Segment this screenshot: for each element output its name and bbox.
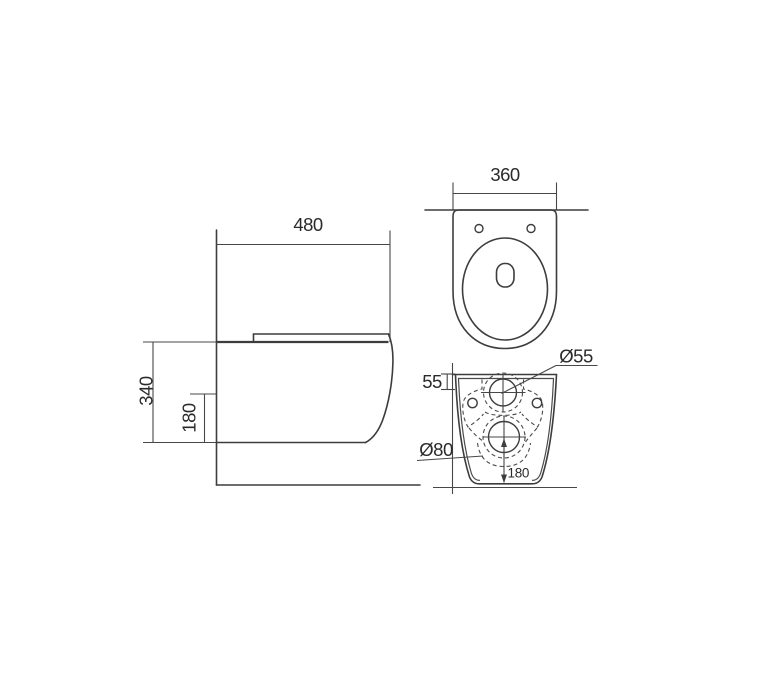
rear-dim-180-arrow-down [501,475,507,484]
rear-view: 55 Ø55 Ø80 180 [417,346,598,495]
side-dim-180-label: 180 [179,403,200,433]
top-view: 360 [425,164,588,349]
side-view: 480 340 180 [136,214,421,485]
rear-dim-55-label: 55 [422,371,442,392]
rear-hidden-connector-right [526,428,538,442]
top-mounting-hole-right [527,225,535,233]
rear-inlet-callout-leader [502,366,557,394]
top-dim-360-label: 360 [490,164,520,185]
side-dim-480-label: 480 [293,214,323,235]
side-front-curve [366,334,393,443]
top-body-outline [453,210,557,349]
side-dim-340-label: 340 [136,376,157,406]
top-bowl-rim [463,238,548,340]
rear-dim-180-label: 180 [508,466,530,481]
drawing-canvas: 480 340 180 360 [0,0,776,683]
rear-hidden-channel-left [463,380,484,428]
top-flush-opening [497,264,515,288]
rear-body-inner-left [459,379,480,481]
rear-hidden-connector-left [469,428,483,441]
rear-fixing-hole-left [468,398,477,407]
rear-outlet-diameter-label: Ø80 [419,439,453,460]
rear-fixing-hole-right [532,398,541,407]
rear-inlet-diameter-label: Ø55 [559,346,593,367]
technical-drawing: 480 340 180 360 [0,0,776,683]
rear-dim-180-arrow-up [501,439,507,448]
top-mounting-hole-left [475,225,483,233]
